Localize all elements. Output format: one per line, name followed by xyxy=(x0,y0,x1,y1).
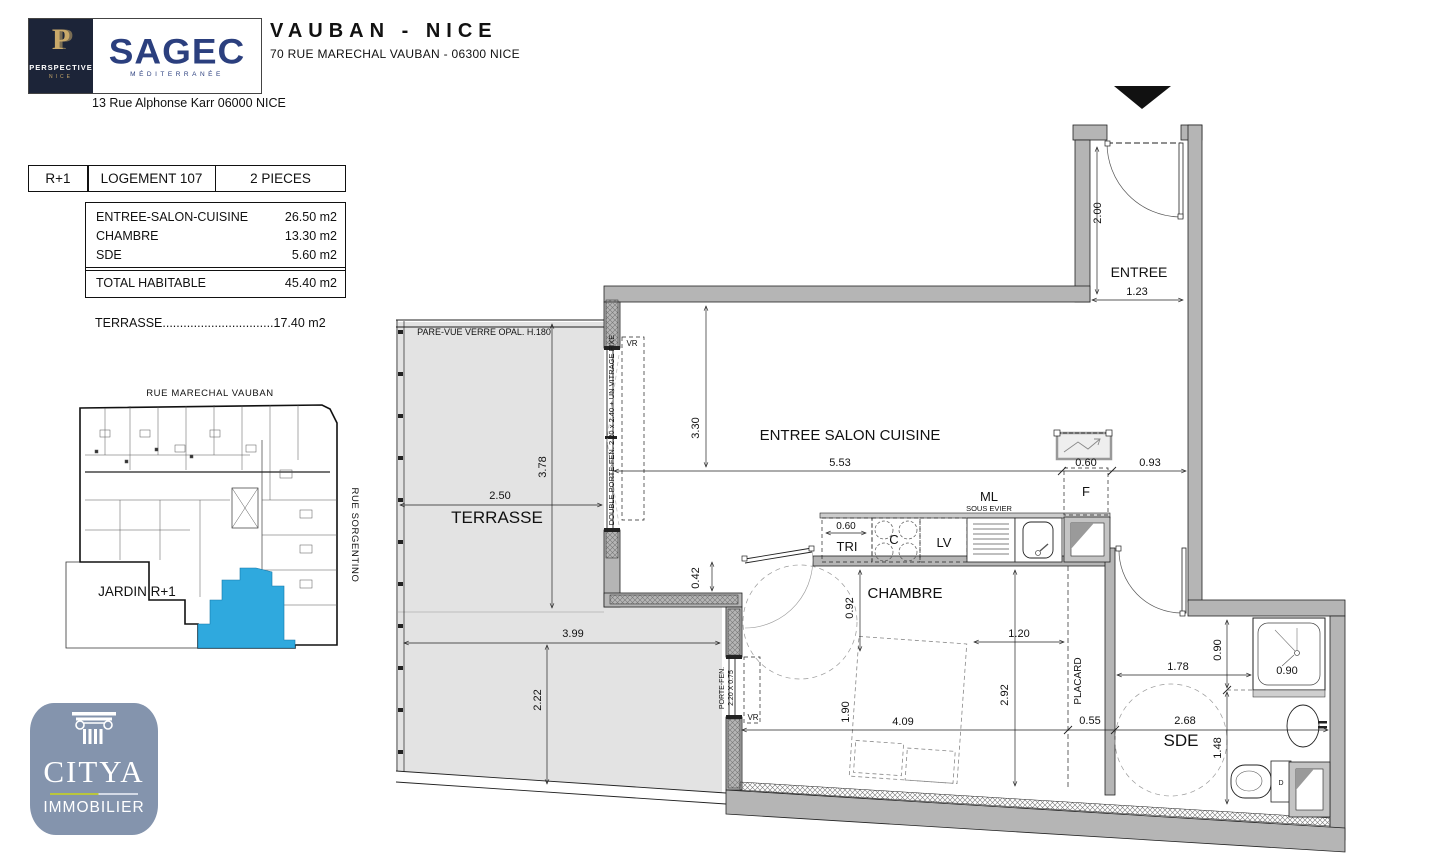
street-top-label: RUE MARECHAL VAUBAN xyxy=(146,388,274,399)
room-label-terrasse: TERRASSE xyxy=(451,508,543,527)
room-label-entree: ENTREE xyxy=(1111,264,1168,280)
label-lv: LV xyxy=(937,535,952,550)
bathroom-fixtures xyxy=(1227,618,1330,817)
dim-entree-w: 1.23 xyxy=(1126,286,1147,298)
dim-sde-h: 1.48 xyxy=(1212,737,1224,758)
dim-chambre-door: 0.92 xyxy=(844,597,856,618)
label-double-porte-fen: DOUBLE PORTE-FEN. 2.20 x 2.40 + UN VITRA… xyxy=(607,335,616,526)
dim-sde-w1: 1.78 xyxy=(1167,661,1188,673)
floor-plan: RUE MARECHAL VAUBAN RUE SORGENTINO xyxy=(0,0,1442,853)
furniture xyxy=(743,565,1227,796)
label-tri: TRI xyxy=(837,539,858,554)
label-hob: C xyxy=(889,532,898,547)
doors xyxy=(742,141,1186,628)
toilet xyxy=(1231,765,1271,798)
dim-sde-w2: 2.68 xyxy=(1174,715,1195,727)
terrace-area xyxy=(396,320,726,804)
entry-door-leaf xyxy=(1179,143,1183,218)
dim-bed-len: 1.90 xyxy=(840,701,852,722)
label-porte-fen-1: PORTE-FEN. xyxy=(719,667,726,709)
entry-door-swing xyxy=(1107,143,1179,217)
room-label-sde: SDE xyxy=(1164,731,1199,750)
label-porte-fen-2: 2.20 X 0.75 xyxy=(728,670,735,706)
dim-terrasse-w1: 2.50 xyxy=(489,490,510,502)
dim-salon-w: 5.53 xyxy=(829,457,850,469)
room-label-placard: PLACARD xyxy=(1073,657,1084,704)
dim-chambre-h: 2.92 xyxy=(999,684,1011,705)
turning-circle-chambre xyxy=(743,565,857,679)
label-d-wc: D xyxy=(1278,780,1283,787)
electrical-panel-icon xyxy=(1054,430,1112,459)
washer-zone xyxy=(967,518,1015,562)
salon-window-vr-box xyxy=(622,337,644,520)
room-label-chambre: CHAMBRE xyxy=(867,585,942,602)
label-fridge: F xyxy=(1082,484,1090,499)
dim-passage-w: 0.93 xyxy=(1139,457,1160,469)
garden-label: JARDIN R+1 xyxy=(98,584,176,599)
dim-chambre-w: 4.09 xyxy=(892,716,913,728)
site-plan-building-outline xyxy=(80,405,337,648)
dim-placard-w: 0.55 xyxy=(1079,715,1100,727)
kitchen-fixtures xyxy=(820,430,1112,562)
dim-terrasse-w2: 3.99 xyxy=(562,628,583,640)
label-sous-evier: SOUS EVIER xyxy=(966,504,1012,513)
dim-tri: 0.60 xyxy=(836,521,856,532)
shower xyxy=(1253,618,1325,690)
dim-corner: 0.42 xyxy=(690,567,702,588)
sde-door-swing xyxy=(1119,548,1182,613)
label-ml: ML xyxy=(980,489,998,504)
street-right-label: RUE SORGENTINO xyxy=(349,488,360,583)
dim-bed-side: 1.20 xyxy=(1008,628,1029,640)
site-plan: RUE MARECHAL VAUBAN RUE SORGENTINO xyxy=(66,388,360,648)
room-label-salon: ENTREE SALON CUISINE xyxy=(760,427,941,444)
bed-outline xyxy=(849,636,967,783)
dim-entree-h: 2.00 xyxy=(1092,202,1104,223)
label-vr-chambre: VR xyxy=(747,713,758,722)
washbasin xyxy=(1287,705,1319,747)
dim-terrasse-h2: 2.22 xyxy=(532,689,544,710)
label-pare-vue: PARE-VUE VERRE OPAL. H.180 xyxy=(417,327,551,337)
dim-terrasse-h1: 3.78 xyxy=(537,456,549,477)
floorplan-page: P PERSPECTIVE NICE SAGEC MÉDITERRANÉE 13… xyxy=(0,0,1442,853)
label-vr-salon: VR xyxy=(626,339,637,348)
entrance-arrow-icon xyxy=(1114,86,1171,109)
dim-shower-w: 0.90 xyxy=(1276,665,1297,677)
sde-door-leaf xyxy=(1182,548,1186,613)
dim-fridge-w: 0.60 xyxy=(1075,457,1096,469)
dim-shower-h: 0.90 xyxy=(1212,639,1224,660)
dim-salon-h: 3.30 xyxy=(690,417,702,438)
